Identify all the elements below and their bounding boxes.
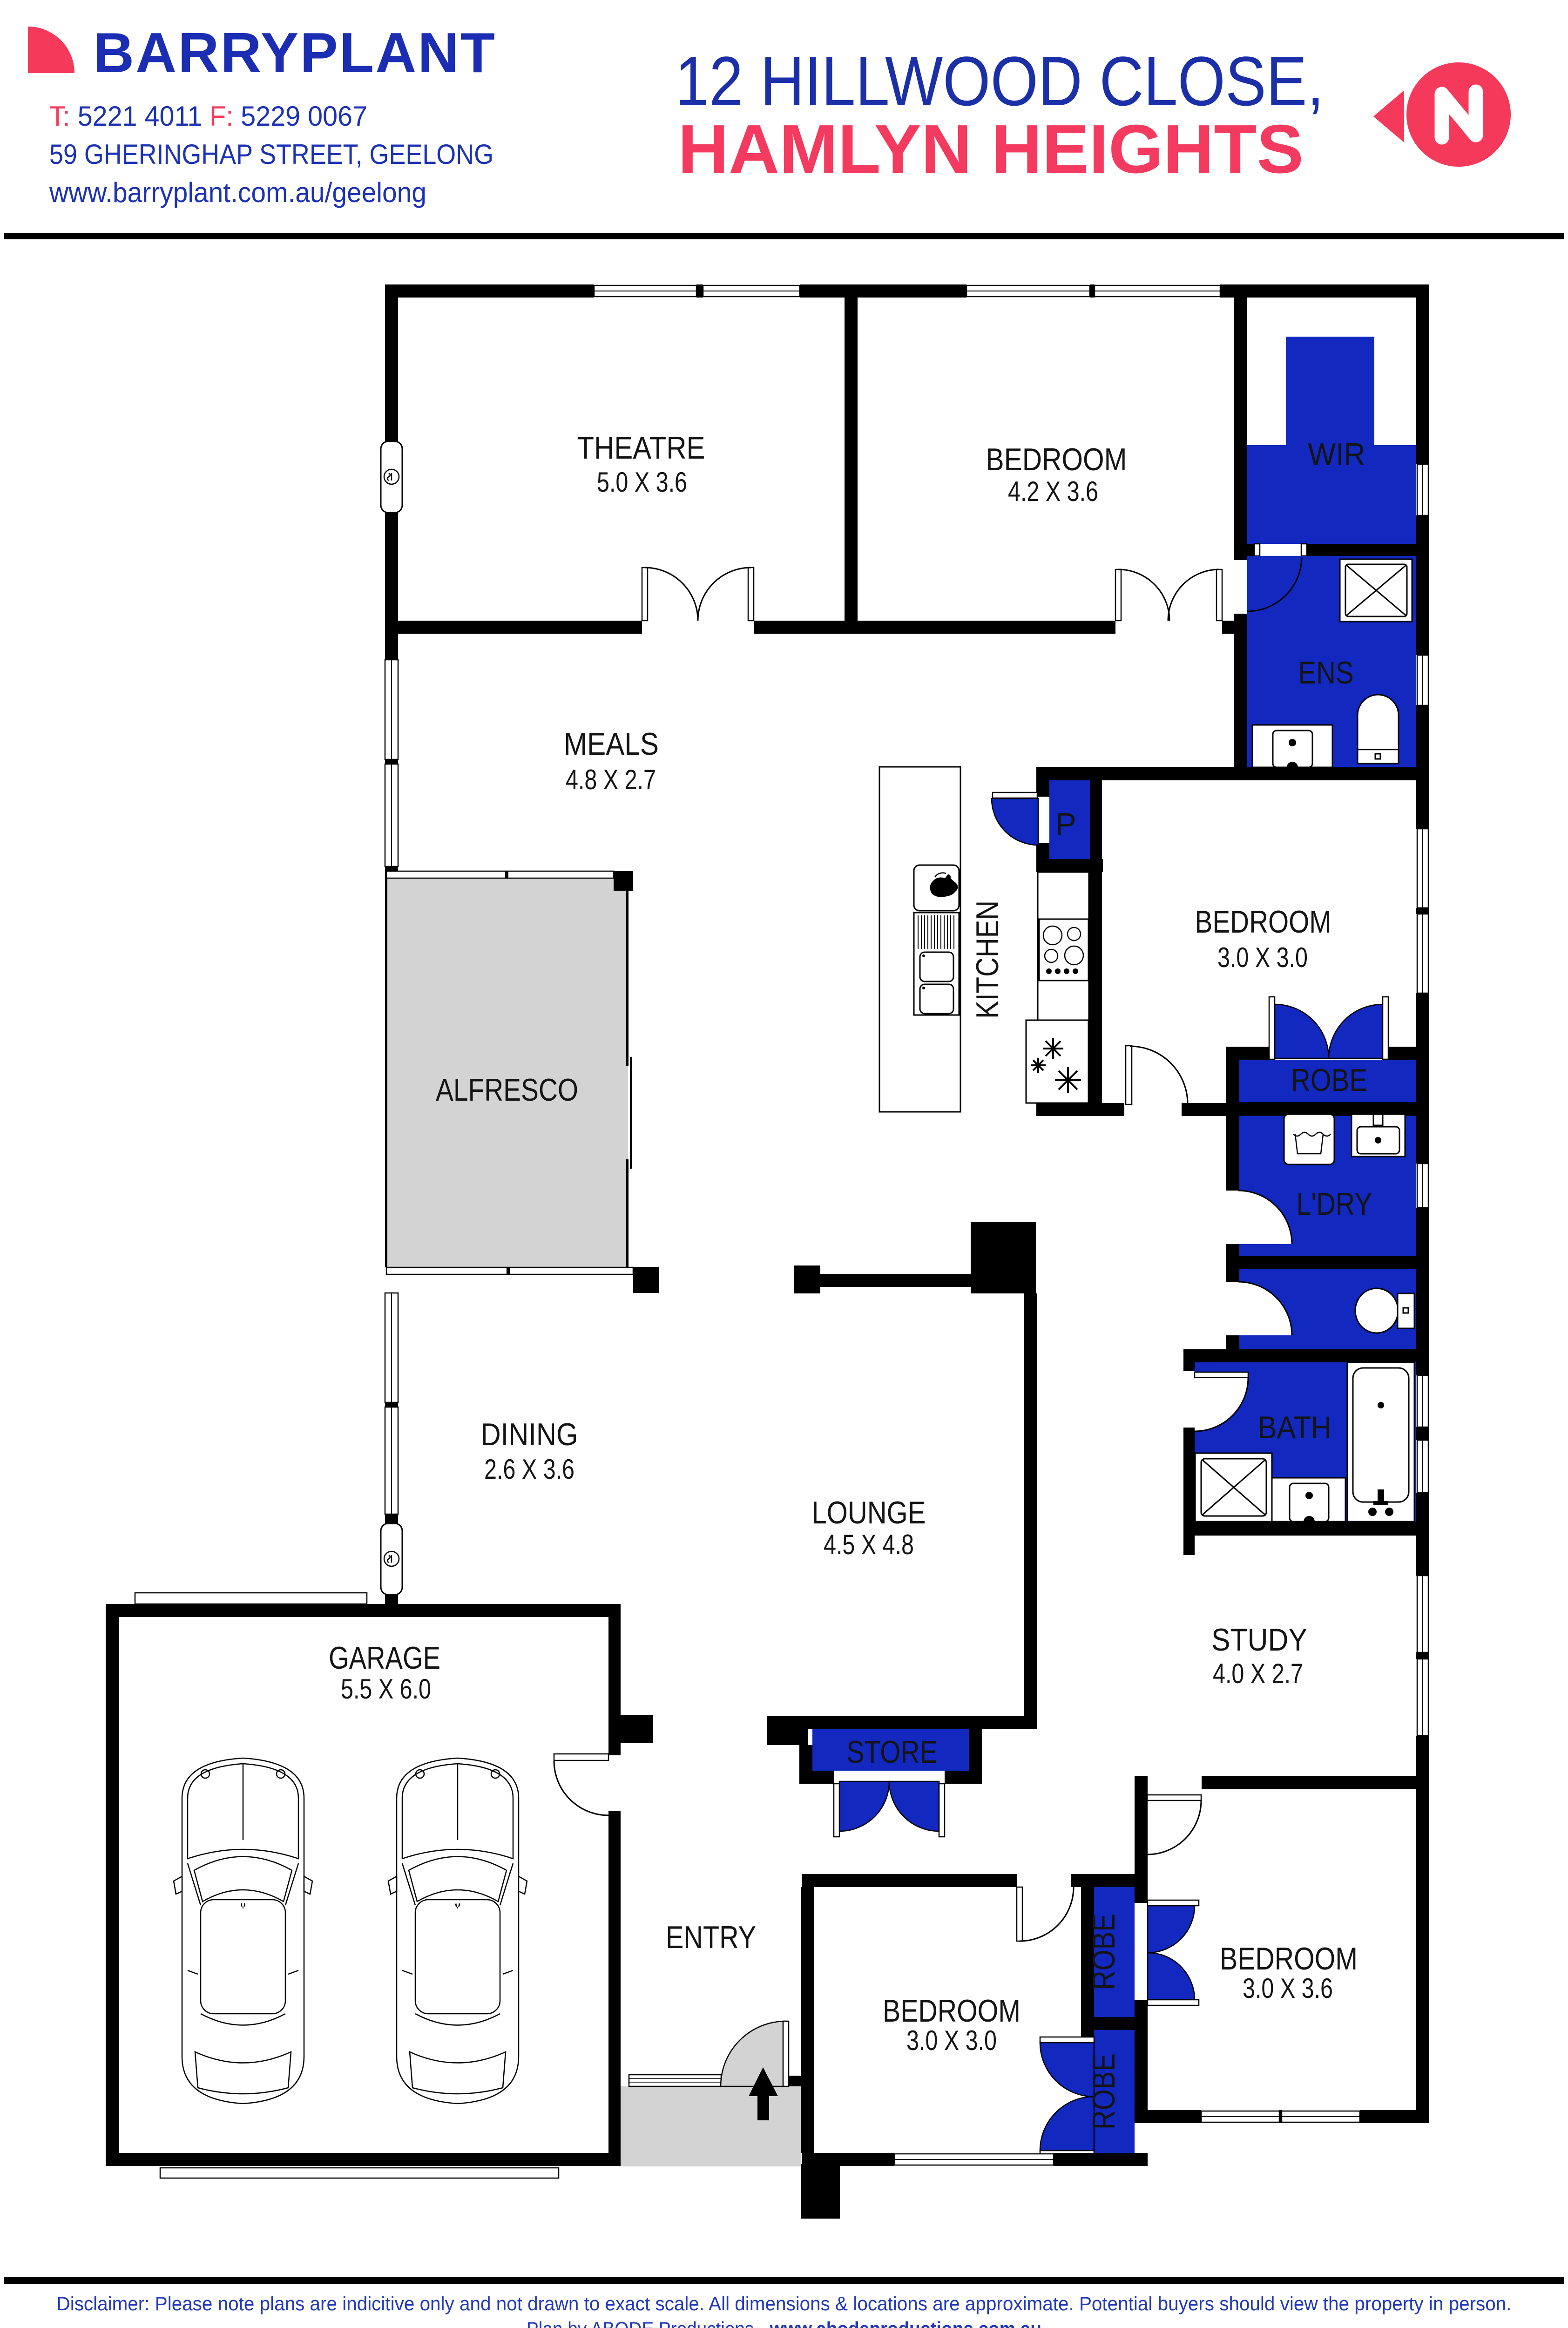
svg-text:LOUNGE: LOUNGE <box>812 1495 926 1530</box>
svg-text:4.2 X 3.6: 4.2 X 3.6 <box>1008 476 1098 507</box>
svg-text:Disclaimer: Please note plans: Disclaimer: Please note plans are indici… <box>57 2293 1512 2314</box>
svg-text:BEDROOM: BEDROOM <box>1220 1941 1358 1976</box>
svg-text:L'DRY: L'DRY <box>1297 1186 1372 1222</box>
svg-text:59 GHERINGHAP STREET, GEELONG: 59 GHERINGHAP STREET, GEELONG <box>49 139 493 170</box>
svg-text:BATH: BATH <box>1258 1410 1331 1445</box>
svg-text:3.0 X 3.6: 3.0 X 3.6 <box>1243 1973 1333 2004</box>
svg-text:3.0 X 3.0: 3.0 X 3.0 <box>1217 942 1308 973</box>
svg-text:ROBE: ROBE <box>1086 2053 1122 2130</box>
svg-text:4.8 X 2.7: 4.8 X 2.7 <box>566 764 656 795</box>
svg-text:2.6 X 3.6: 2.6 X 3.6 <box>484 1454 574 1485</box>
svg-text:4.0 X 2.7: 4.0 X 2.7 <box>1213 1658 1303 1689</box>
svg-text:WIR: WIR <box>1308 437 1365 472</box>
svg-text:BEDROOM: BEDROOM <box>986 442 1127 477</box>
svg-text:HAMLYN HEIGHTS: HAMLYN HEIGHTS <box>678 111 1304 188</box>
svg-text:BEDROOM: BEDROOM <box>883 1993 1021 2029</box>
svg-text:3.0 X 3.0: 3.0 X 3.0 <box>906 2025 997 2056</box>
svg-text:ENS: ENS <box>1298 655 1354 690</box>
svg-text:5.5 X 6.0: 5.5 X 6.0 <box>341 1673 431 1705</box>
svg-text:BEDROOM: BEDROOM <box>1195 904 1331 940</box>
svg-text:T: 5221 4011 F: 5229 0067: T: 5221 4011 F: 5229 0067 <box>49 101 367 132</box>
svg-text:MEALS: MEALS <box>564 726 659 762</box>
svg-text:4.5 X 4.8: 4.5 X 4.8 <box>824 1529 914 1560</box>
svg-text:ENTRY: ENTRY <box>666 1920 756 1955</box>
svg-text:DINING: DINING <box>481 1417 578 1452</box>
svg-text:www.barryplant.com.au/geelong: www.barryplant.com.au/geelong <box>49 177 426 208</box>
svg-text:P: P <box>1055 806 1076 842</box>
svg-text:ROBE: ROBE <box>1086 1914 1122 1990</box>
svg-text:5.0 X 3.6: 5.0 X 3.6 <box>597 467 687 498</box>
svg-text:ROBE: ROBE <box>1291 1062 1367 1098</box>
svg-text:THEATRE: THEATRE <box>577 430 705 466</box>
svg-text:Plan by ABODE Productions - ww: Plan by ABODE Productions - www.abodepro… <box>527 2318 1041 2328</box>
svg-text:STUDY: STUDY <box>1211 1622 1307 1658</box>
svg-text:STORE: STORE <box>847 1734 938 1770</box>
svg-text:12 HILLWOOD CLOSE,: 12 HILLWOOD CLOSE, <box>675 42 1324 120</box>
svg-text:GARAGE: GARAGE <box>329 1640 440 1676</box>
svg-text:ALFRESCO: ALFRESCO <box>436 1072 578 1108</box>
svg-text:KITCHEN: KITCHEN <box>970 900 1005 1019</box>
svg-text:BARRYPLANT: BARRYPLANT <box>93 21 495 84</box>
